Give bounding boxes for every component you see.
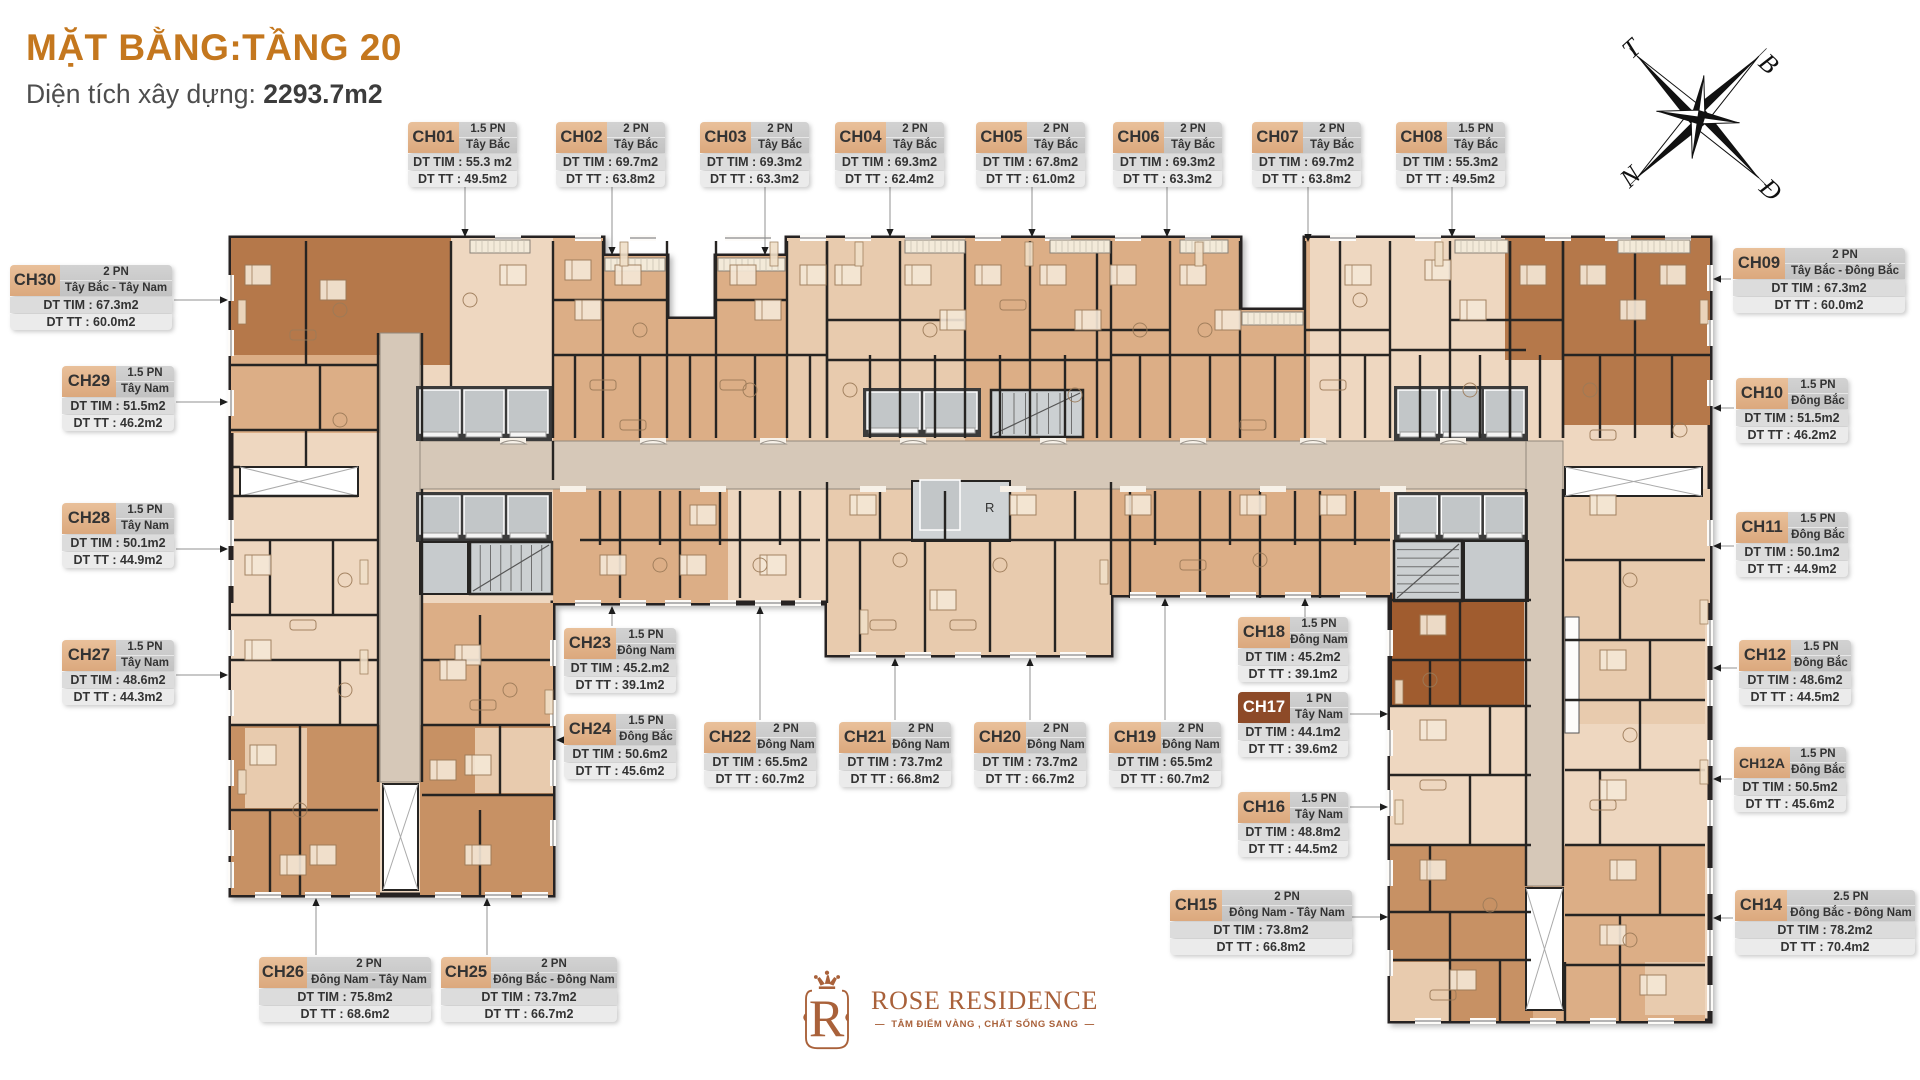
svg-text:R: R	[809, 990, 845, 1048]
svg-text:B: B	[1753, 48, 1784, 80]
svg-text:R: R	[985, 500, 994, 515]
svg-text:T: T	[1616, 32, 1647, 64]
svg-text:N: N	[1613, 159, 1647, 194]
